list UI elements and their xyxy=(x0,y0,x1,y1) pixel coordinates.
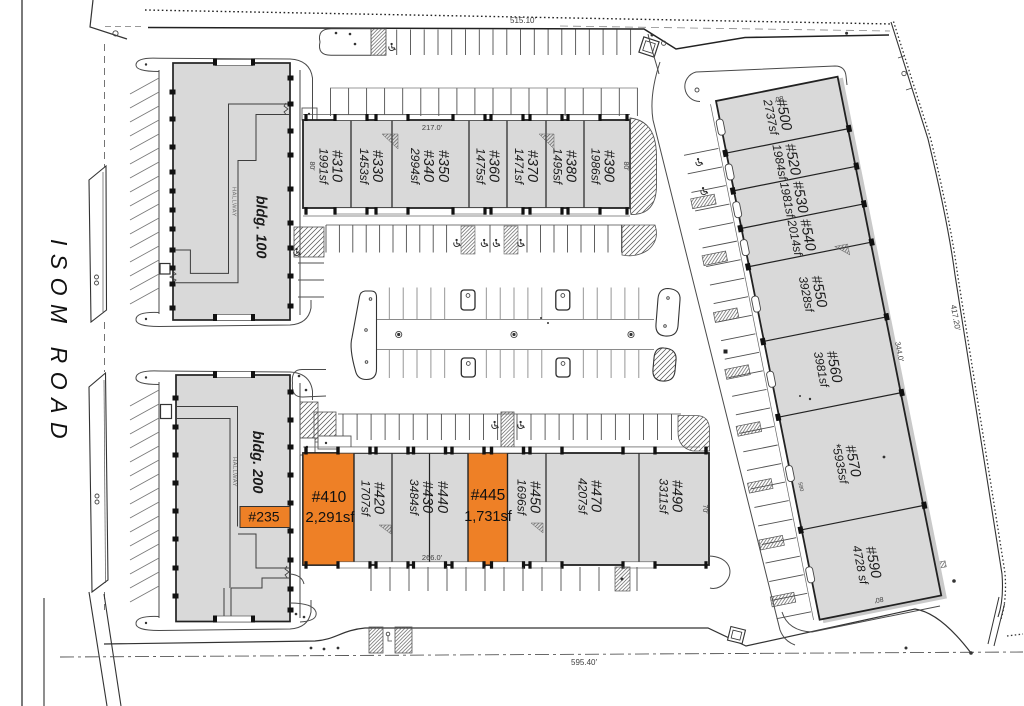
svg-text:HALLWAY: HALLWAY xyxy=(231,187,237,217)
svg-text:1475sf: 1475sf xyxy=(474,148,488,186)
svg-text:1991sf: 1991sf xyxy=(317,148,331,186)
svg-text:1,731sf: 1,731sf xyxy=(464,509,513,525)
svg-text:ISOM ROAD: ISOM ROAD xyxy=(46,239,72,447)
svg-text:#440: #440 xyxy=(434,481,450,513)
svg-text:515.10′: 515.10′ xyxy=(510,16,536,25)
svg-text:1453sf: 1453sf xyxy=(357,148,371,186)
svg-text:1495sf: 1495sf xyxy=(551,148,565,186)
svg-text:217.0′: 217.0′ xyxy=(422,123,443,132)
svg-text:#350: #350 xyxy=(435,150,451,182)
svg-text:266.0′: 266.0′ xyxy=(422,553,443,562)
svg-text:3311sf: 3311sf xyxy=(657,478,671,515)
svg-text:#235: #235 xyxy=(248,509,279,525)
svg-text:#410: #410 xyxy=(312,489,347,506)
svg-text:2994sf: 2994sf xyxy=(408,147,422,186)
svg-text:#445: #445 xyxy=(471,487,505,504)
svg-text:1986sf: 1986sf xyxy=(589,148,603,186)
svg-text:1471sf: 1471sf xyxy=(512,148,526,186)
svg-text:80′: 80′ xyxy=(622,161,629,171)
svg-text:bldg. 200: bldg. 200 xyxy=(249,431,265,494)
svg-text:2,291sf: 2,291sf xyxy=(305,509,355,526)
svg-text:HALLWAY: HALLWAY xyxy=(231,457,237,487)
svg-text:80′: 80′ xyxy=(308,161,315,171)
svg-text:3484sf: 3484sf xyxy=(407,479,421,517)
svg-text:1696sf: 1696sf xyxy=(515,479,529,517)
svg-text:70′: 70′ xyxy=(701,504,708,514)
svg-text:bldg. 100: bldg. 100 xyxy=(253,196,269,259)
svg-text:1707sf: 1707sf xyxy=(359,480,373,518)
svg-text:595.40′: 595.40′ xyxy=(571,658,597,667)
svg-text:4207sf: 4207sf xyxy=(576,478,590,516)
